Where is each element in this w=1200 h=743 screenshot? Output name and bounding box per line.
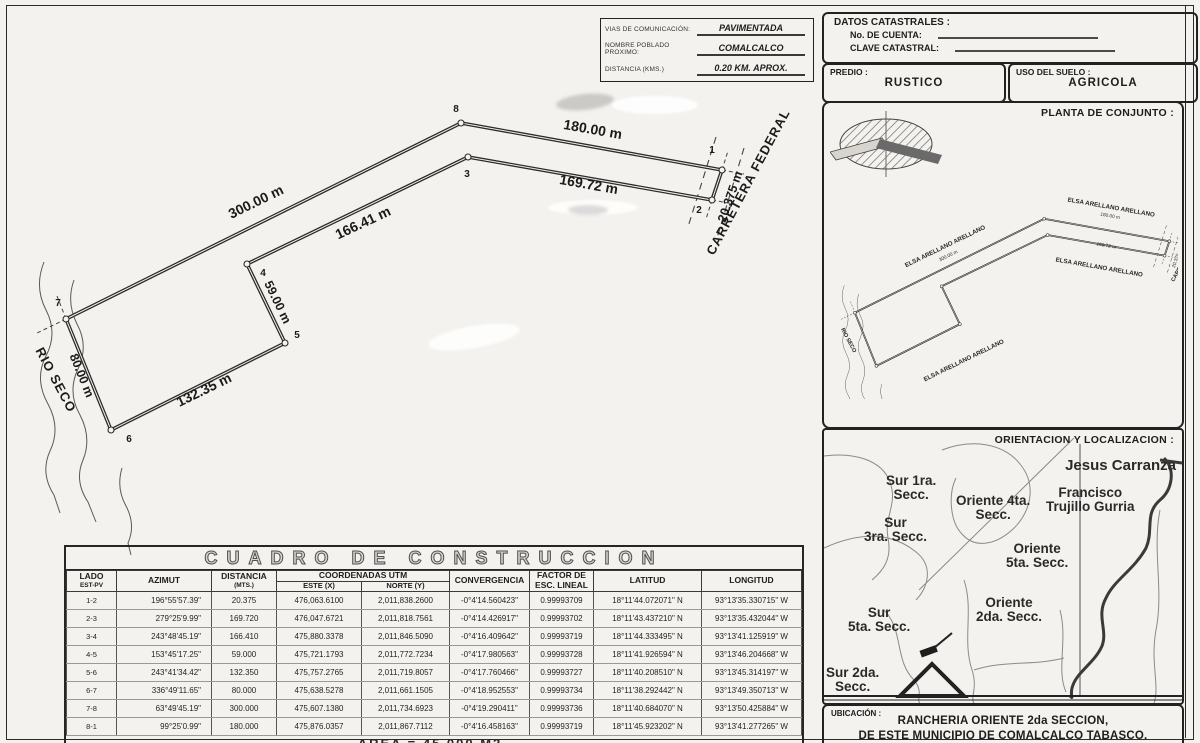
cell-lat: 18°11'38.292442" N <box>594 681 702 699</box>
parcel-polygon <box>37 120 744 555</box>
cell-este: 476,063.6100 <box>277 591 362 609</box>
label-sur-2da: Sur 2da.Secc. <box>826 666 879 694</box>
poblado-value: COMALCALCO <box>697 43 805 56</box>
cell-azimut: 243°48'45.19" <box>117 627 212 645</box>
cell-lon: 93°13'35.432044" W <box>702 609 802 627</box>
header-distancia: DISTANCIA (MTS.) <box>212 571 277 592</box>
cell-azimut: 153°45'17.25" <box>117 645 212 663</box>
comm-row-vias: VIAS DE COMUNICACIÓN: PAVIMENTADA <box>601 19 813 39</box>
cell-factor: 0.99993734 <box>530 681 594 699</box>
cell-norte: 2,011,818.7561 <box>362 609 450 627</box>
survey-drawing: 1 2 3 4 5 6 7 8 180.00 m 169.72 m 300.00… <box>0 0 820 560</box>
scan-smudge <box>568 205 608 215</box>
ubicacion-line2: DE ESTE MUNICIPIO DE COMALCALCO TABASCO. <box>824 730 1182 742</box>
cell-dist: 20.375 <box>212 591 277 609</box>
cell-lat: 18°11'40.208510" N <box>594 663 702 681</box>
cell-lon: 93°13'46.204668" W <box>702 645 802 663</box>
neighbor-left-label: ELSA ARELLANO ARELLANO <box>904 224 987 269</box>
cell-conv: -0°4'18.952553" <box>450 681 530 699</box>
cuenta-blank-line <box>938 31 1098 39</box>
label-jesus-carranza: Jesus Carranza <box>1065 458 1176 473</box>
cell-conv: -0°4'19.290411" <box>450 699 530 717</box>
cuenta-row: No. DE CUENTA: <box>824 28 1196 41</box>
distancia-label: DISTANCIA (KMS.) <box>601 66 697 73</box>
cell-norte: 2,011,772.7234 <box>362 645 450 663</box>
neighbor-center-label: ELSA ARELLANO ARELLANO <box>1055 256 1143 278</box>
orientacion-title: ORIENTACION Y LOCALIZACION : <box>995 434 1174 446</box>
label-oriente-4ta: Oriente 4ta.Secc. <box>956 494 1030 522</box>
cell-conv: -0°4'14.560423" <box>450 591 530 609</box>
cell-norte: 2,011,867.7112 <box>362 717 450 735</box>
cell-lado: 3-4 <box>67 627 117 645</box>
scan-smudge <box>612 96 698 114</box>
cell-norte: 2,011,846.5090 <box>362 627 450 645</box>
communication-box: VIAS DE COMUNICACIÓN: PAVIMENTADA NOMBRE… <box>600 18 814 82</box>
cell-lado: 4-5 <box>67 645 117 663</box>
label-sur-1ra: Sur 1ra.Secc. <box>886 474 936 502</box>
table-row: 4-5153°45'17.25"59.000475,721.17932,011,… <box>67 645 802 663</box>
label-oriente-2da: Oriente2da. Secc. <box>976 596 1042 624</box>
cell-azimut: 196°55'57.39" <box>117 591 212 609</box>
mini-dim-right: 20.375 m <box>1171 248 1178 269</box>
poblado-label: NOMBRE POBLADO PROXIMO: <box>601 42 697 56</box>
cell-este: 475,721.1793 <box>277 645 362 663</box>
datos-catastrales-title: DATOS CATASTRALES : <box>824 14 1196 28</box>
cell-azimut: 336°49'11.65" <box>117 681 212 699</box>
table-row: 7-863°49'45.19"300.000475,607.13802,011,… <box>67 699 802 717</box>
cell-este: 475,880.3378 <box>277 627 362 645</box>
cell-norte: 2,011,838.2600 <box>362 591 450 609</box>
vertex-label-6: 6 <box>126 434 132 445</box>
label-sur-5ta: Sur5ta. Secc. <box>848 606 910 634</box>
label-francisco-trujillo: FranciscoTrujillo Gurria <box>1046 486 1135 514</box>
predio-value: RUSTICO <box>824 77 1004 89</box>
header-lado: LADO EST-PV <box>67 571 117 592</box>
mini-rio-seco-label: RIO SECO <box>839 327 857 354</box>
cuadro-title: CUADRO DE CONSTRUCCION <box>66 547 802 570</box>
cell-factor: 0.99993702 <box>530 609 594 627</box>
uso-suelo-value: AGRICOLA <box>1010 77 1196 89</box>
cell-azimut: 279°25'9.99" <box>117 609 212 627</box>
cell-dist: 180.000 <box>212 717 277 735</box>
cell-lat: 18°11'40.684070" N <box>594 699 702 717</box>
cell-factor: 0.99993719 <box>530 717 594 735</box>
header-latitud: LATITUD <box>594 571 702 592</box>
table-row: 5-6243°41'34.42"132.350475,757.27652,011… <box>67 663 802 681</box>
vertex-label-2: 2 <box>696 205 702 216</box>
header-azimut: AZIMUT <box>117 571 212 592</box>
uso-suelo-label: USO DEL SUELO : <box>1010 65 1196 77</box>
cell-dist: 169.720 <box>212 609 277 627</box>
mini-dim-top: 180.00 m <box>1100 212 1121 221</box>
cell-lon: 93°13'41.125919" W <box>702 627 802 645</box>
cell-este: 476,047.6721 <box>277 609 362 627</box>
cell-dist: 59.000 <box>212 645 277 663</box>
neighbor-bottom-label: ELSA ARELLANO ARELLANO <box>923 338 1006 383</box>
vias-label: VIAS DE COMUNICACIÓN: <box>601 26 697 33</box>
header-norte: NORTE (Y) <box>362 581 450 591</box>
cell-factor: 0.99993727 <box>530 663 594 681</box>
predio-label: PREDIO : <box>824 65 1004 77</box>
cell-factor: 0.99993736 <box>530 699 594 717</box>
cell-lon: 93°13'35.330715" W <box>702 591 802 609</box>
cell-lat: 18°11'41.926594" N <box>594 645 702 663</box>
cell-lado: 5-6 <box>67 663 117 681</box>
cell-lado: 2-3 <box>67 609 117 627</box>
cell-dist: 300.000 <box>212 699 277 717</box>
distance-8-1: 180.00 m <box>562 116 623 142</box>
vertex-label-7: 7 <box>55 298 61 309</box>
cell-azimut: 243°41'34.42" <box>117 663 212 681</box>
cell-lado: 6-7 <box>67 681 117 699</box>
comm-row-poblado: NOMBRE POBLADO PROXIMO: COMALCALCO <box>601 39 813 59</box>
cell-lon: 93°13'45.314197" W <box>702 663 802 681</box>
datos-catastrales-box: DATOS CATASTRALES : No. DE CUENTA: CLAVE… <box>822 12 1198 64</box>
cell-conv: -0°4'17.760466" <box>450 663 530 681</box>
cell-lado: 1-2 <box>67 591 117 609</box>
cell-norte: 2,011,719.8057 <box>362 663 450 681</box>
cell-conv: -0°4'17.980563" <box>450 645 530 663</box>
cell-este: 475,876.0357 <box>277 717 362 735</box>
vertex-label-8: 8 <box>453 104 459 115</box>
distance-5-6: 132.35 m <box>174 369 234 409</box>
cell-lado: 8-1 <box>67 717 117 735</box>
table-row: 2-3279°25'9.99"169.720476,047.67212,011,… <box>67 609 802 627</box>
construction-table-body: 1-2196°55'57.39"20.375476,063.61002,011,… <box>67 591 802 735</box>
cell-este: 475,607.1380 <box>277 699 362 717</box>
cuenta-label: No. DE CUENTA: <box>850 30 922 40</box>
uso-suelo-box: USO DEL SUELO : AGRICOLA <box>1008 63 1198 103</box>
area-note: AREA = 45,000 M2 <box>280 736 580 743</box>
ubicacion-box: UBICACIÓN : RANCHERIA ORIENTE 2da SECCIO… <box>822 704 1184 743</box>
clave-label: CLAVE CATASTRAL: <box>850 43 939 53</box>
predio-box: PREDIO : RUSTICO <box>822 63 1006 103</box>
vertex-label-3: 3 <box>464 169 470 180</box>
table-row: 1-2196°55'57.39"20.375476,063.61002,011,… <box>67 591 802 609</box>
site-plan-mini-map: ELSA ARELLANO ARELLANO 180.00 m ELSA ARE… <box>828 189 1178 399</box>
cell-lat: 18°11'44.333495" N <box>594 627 702 645</box>
vertex-label-4: 4 <box>260 268 266 279</box>
cell-este: 475,757.2765 <box>277 663 362 681</box>
header-este: ESTE (X) <box>277 581 362 591</box>
vertex-label-1: 1 <box>709 145 715 156</box>
mini-dim-diag: 169.72 m <box>1096 241 1117 250</box>
cell-este: 475,638.5278 <box>277 681 362 699</box>
cell-azimut: 99°25'0.99" <box>117 717 212 735</box>
table-row: 3-4243°48'45.19"166.410475,880.33782,011… <box>67 627 802 645</box>
vertex-label-5: 5 <box>294 330 300 341</box>
cell-norte: 2,011,734.6923 <box>362 699 450 717</box>
label-oriente-5ta: Oriente5ta. Secc. <box>1006 542 1068 570</box>
label-sur-3ra: Sur3ra. Secc. <box>864 516 927 544</box>
clave-row: CLAVE CATASTRAL: <box>824 41 1196 54</box>
cell-dist: 132.350 <box>212 663 277 681</box>
cell-lat: 18°11'43.437210" N <box>594 609 702 627</box>
comm-row-distancia: DISTANCIA (KMS.) 0.20 KM. APROX. <box>601 59 813 79</box>
north-intersection-symbol <box>830 111 945 177</box>
clave-blank-line <box>955 44 1115 52</box>
cell-factor: 0.99993709 <box>530 591 594 609</box>
cell-dist: 166.410 <box>212 627 277 645</box>
header-convergencia: CONVERGENCIA <box>450 571 530 592</box>
cell-lat: 18°11'44.072071" N <box>594 591 702 609</box>
header-factor: FACTOR DE ESC. LINEAL <box>530 571 594 592</box>
distancia-value: 0.20 KM. APROX. <box>697 63 805 76</box>
cell-lon: 93°13'49.350713" W <box>702 681 802 699</box>
ubicacion-line1: RANCHERIA ORIENTE 2da SECCION, <box>824 715 1182 727</box>
vias-value: PAVIMENTADA <box>697 23 805 36</box>
cell-lon: 93°13'50.425884" W <box>702 699 802 717</box>
cell-conv: -0°4'14.426917" <box>450 609 530 627</box>
survey-sheet: 1 2 3 4 5 6 7 8 180.00 m 169.72 m 300.00… <box>0 0 1200 743</box>
construction-table: LADO EST-PV AZIMUT DISTANCIA (MTS.) COOR… <box>66 570 802 736</box>
cell-lat: 18°11'45.923202" N <box>594 717 702 735</box>
cell-lon: 93°13'41.277265" W <box>702 717 802 735</box>
construction-table-header: LADO EST-PV AZIMUT DISTANCIA (MTS.) COOR… <box>67 571 802 592</box>
cell-dist: 80.000 <box>212 681 277 699</box>
table-row: 6-7336°49'11.65"80.000475,638.52782,011,… <box>67 681 802 699</box>
cell-lado: 7-8 <box>67 699 117 717</box>
planta-de-conjunto-box: PLANTA DE CONJUNTO : ELSA ARELLANO ARELL… <box>822 101 1184 429</box>
table-row: 8-199°25'0.99"180.000475,876.03572,011,8… <box>67 717 802 735</box>
cell-factor: 0.99993728 <box>530 645 594 663</box>
cell-norte: 2,011,661.1505 <box>362 681 450 699</box>
cuadro-construccion: CUADRO DE CONSTRUCCION LADO EST-PV AZIMU… <box>64 545 804 743</box>
sheet-border-inner <box>1185 5 1186 738</box>
cell-factor: 0.99993719 <box>530 627 594 645</box>
planta-title: PLANTA DE CONJUNTO : <box>1041 107 1174 119</box>
distance-2-3: 169.72 m <box>558 171 619 197</box>
orientacion-localizacion-box: ORIENTACION Y LOCALIZACION : Jesus Carra… <box>822 428 1184 705</box>
header-longitud: LONGITUD <box>702 571 802 592</box>
cell-conv: -0°4'16.409642" <box>450 627 530 645</box>
cell-conv: -0°4'16.458163" <box>450 717 530 735</box>
cell-azimut: 63°49'45.19" <box>117 699 212 717</box>
header-coordenadas: COORDENADAS UTM <box>277 571 450 582</box>
